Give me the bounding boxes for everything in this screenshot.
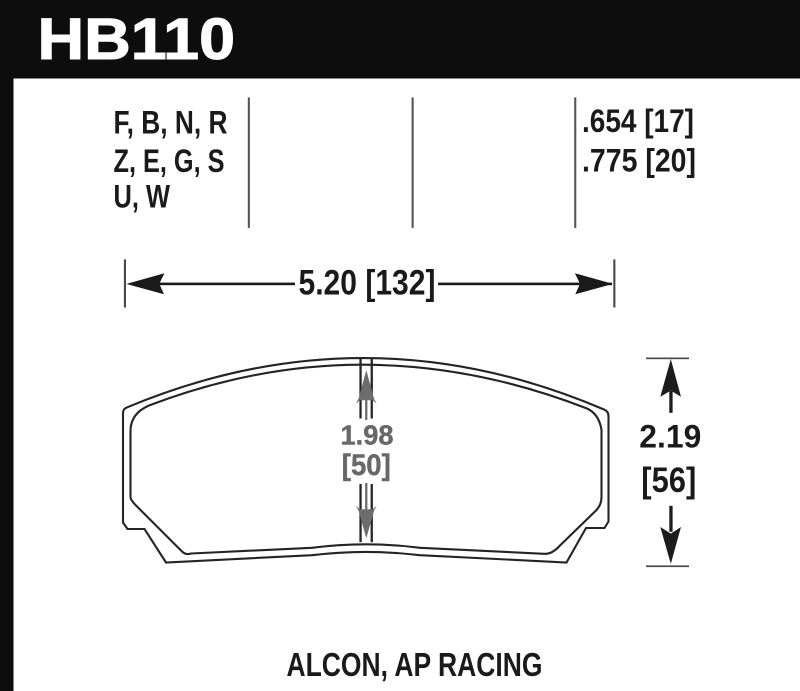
svg-text:.654 [17]: .654 [17] — [582, 103, 694, 139]
svg-text:ALCON, AP RACING: ALCON, AP RACING — [287, 646, 543, 683]
svg-text:HB110: HB110 — [38, 7, 236, 72]
svg-text:[50]: [50] — [342, 449, 391, 482]
svg-text:1.98: 1.98 — [341, 420, 394, 451]
svg-text:Z, E, G, S: Z, E, G, S — [114, 143, 225, 179]
svg-text:F, B, N, R: F, B, N, R — [114, 104, 228, 140]
svg-text:2.19: 2.19 — [639, 419, 701, 455]
svg-text:U, W: U, W — [114, 179, 171, 215]
svg-text:[56]: [56] — [641, 460, 696, 500]
svg-text:.775 [20]: .775 [20] — [582, 143, 696, 179]
svg-text:5.20 [132]: 5.20 [132] — [299, 264, 436, 303]
